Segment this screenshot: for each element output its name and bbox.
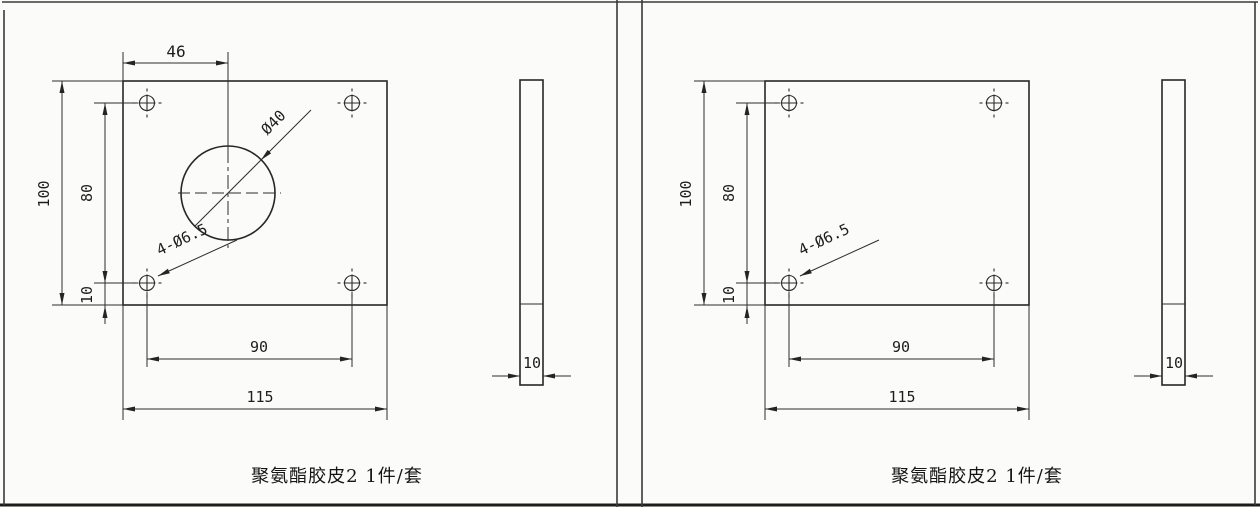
- dim-plate-width: 115: [765, 305, 1029, 420]
- side-view: 10: [1134, 80, 1213, 385]
- leader-bore-diameter: Ø40: [195, 107, 311, 226]
- dim-text-hole-cols: 90: [892, 338, 910, 356]
- dim-hole-cols: 90: [147, 292, 352, 367]
- dim-edge-margin: 10: [78, 283, 105, 324]
- side-view-profile: [1162, 80, 1185, 385]
- dim-text-thickness: 10: [523, 354, 541, 372]
- dim-text-hole-rows: 80: [720, 184, 738, 202]
- dim-hole-rows: 80: [720, 103, 780, 283]
- dim-edge-margin: 10: [720, 283, 747, 324]
- dim-text-plate-height: 100: [677, 180, 695, 207]
- drawing-canvas: 46 100 80 10 90: [0, 0, 1260, 507]
- label-bore-diameter: Ø40: [258, 107, 290, 139]
- side-view-profile: [520, 80, 543, 385]
- right-sheet: 100 80 10 90 115: [677, 80, 1213, 487]
- dim-hole-rows: 80: [78, 103, 138, 283]
- dim-text-plate-width: 115: [246, 388, 273, 406]
- left-sheet: 46 100 80 10 90: [35, 42, 571, 487]
- dim-text-hole-rows: 80: [78, 184, 96, 202]
- plate-front-view: [765, 81, 1029, 305]
- leader-holes-callout: 4-Ø6.5: [154, 220, 237, 276]
- part-caption: 聚氨酯胶皮2 1件/套: [251, 466, 423, 487]
- part-caption: 聚氨酯胶皮2 1件/套: [891, 466, 1063, 487]
- dim-text-hole-cols: 90: [250, 338, 268, 356]
- dim-text-plate-width: 115: [888, 388, 915, 406]
- dim-text-edge-margin: 10: [78, 286, 96, 304]
- dim-text-plate-height: 100: [35, 180, 53, 207]
- side-view: 10: [492, 80, 571, 385]
- dim-hole-cols: 90: [789, 292, 994, 367]
- corner-hole-top-right: [980, 89, 1009, 118]
- label-holes-callout: 4-Ø6.5: [796, 220, 853, 259]
- scanned-drawing-page: 46 100 80 10 90: [0, 0, 1260, 507]
- dim-text-thickness: 10: [1165, 354, 1183, 372]
- dim-bore-offset: 46: [123, 42, 228, 81]
- dim-text-bore-offset: 46: [166, 42, 185, 61]
- corner-hole-top-right: [338, 89, 367, 118]
- leader-holes-callout: 4-Ø6.5: [796, 220, 879, 276]
- dim-plate-width: 115: [123, 305, 387, 420]
- dim-text-edge-margin: 10: [720, 286, 738, 304]
- label-holes-callout: 4-Ø6.5: [154, 220, 211, 259]
- sheet-frames: [0, 0, 1260, 507]
